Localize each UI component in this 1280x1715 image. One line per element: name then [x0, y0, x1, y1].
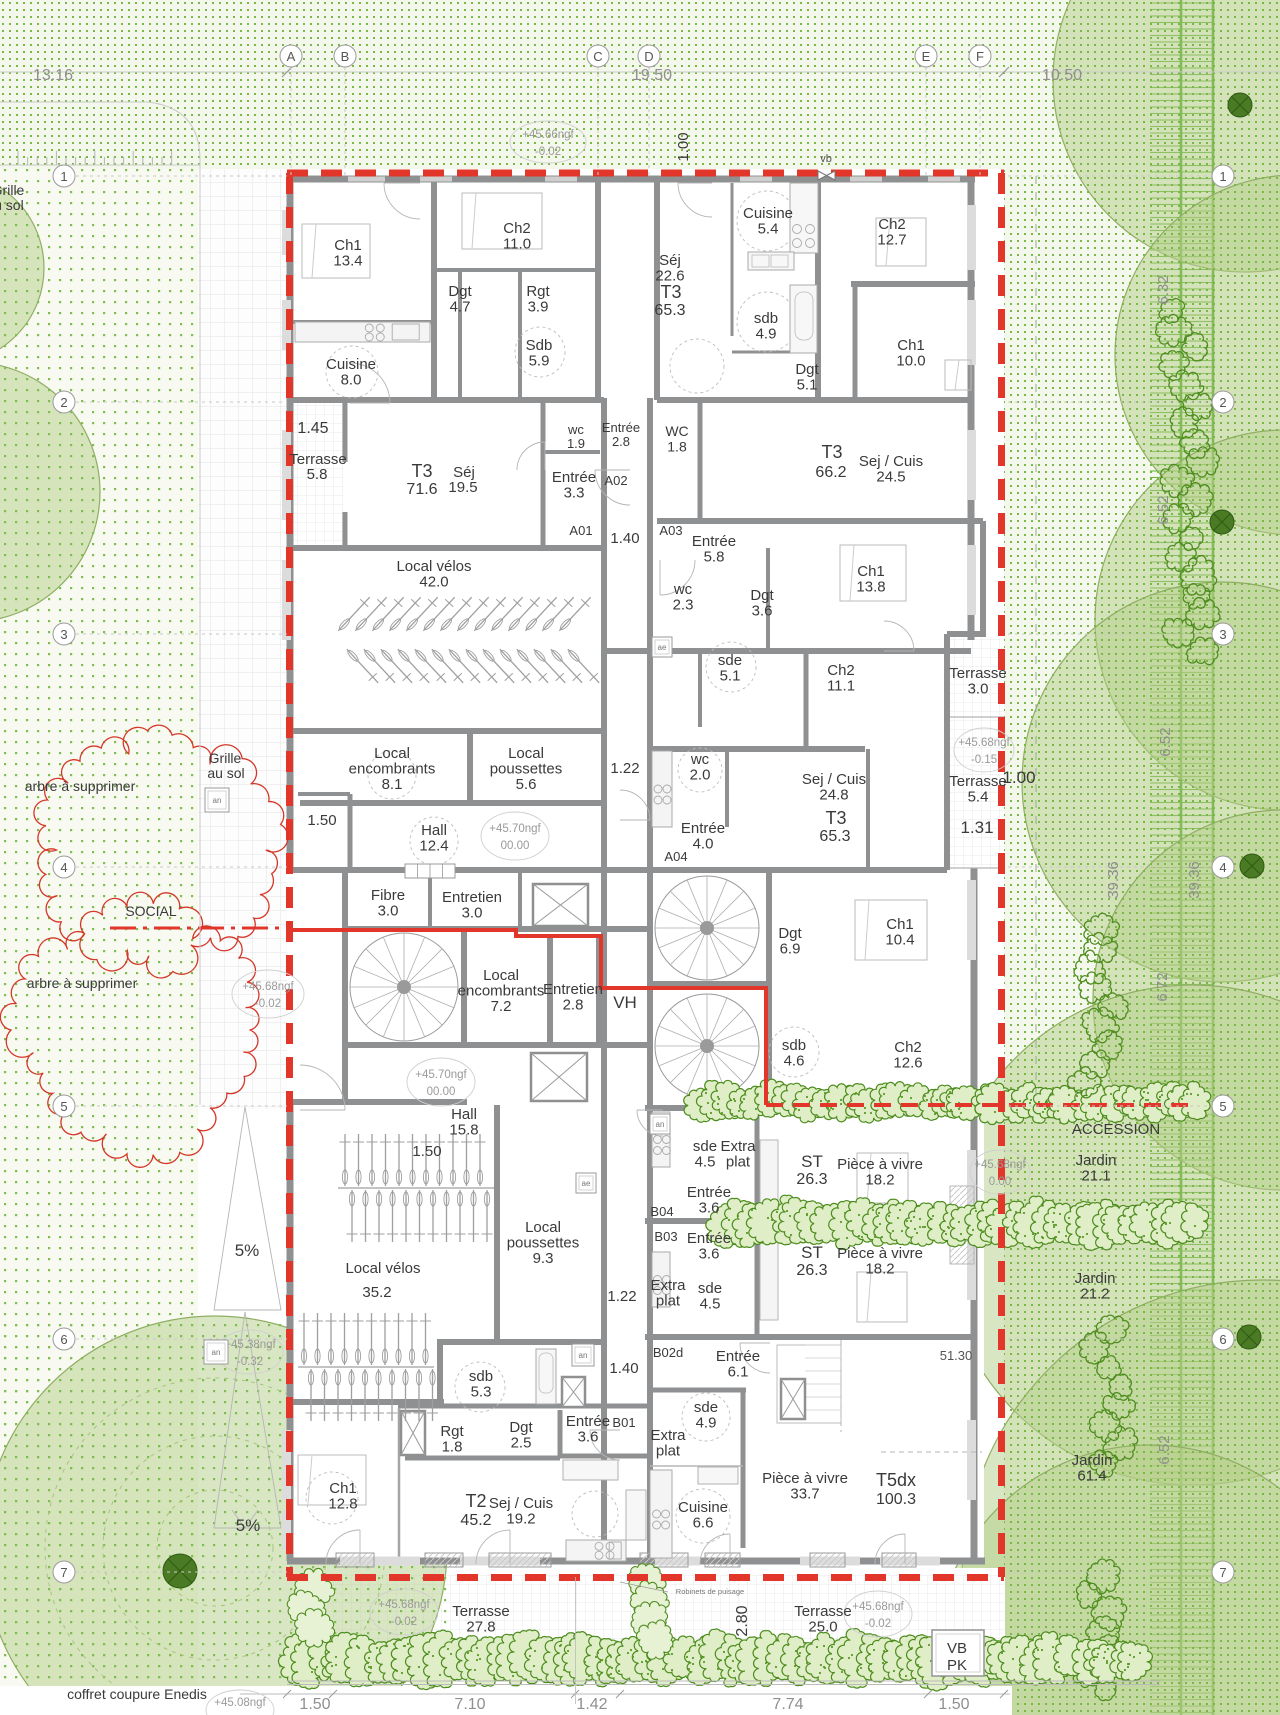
svg-text:12.4: 12.4 — [419, 838, 448, 855]
svg-text:Ch2: Ch2 — [878, 216, 906, 233]
svg-text:B04: B04 — [650, 1204, 673, 1219]
svg-text:5.8: 5.8 — [704, 549, 725, 566]
svg-text:Jardin: Jardin — [1076, 1152, 1117, 1169]
svg-text:25.0: 25.0 — [808, 1619, 837, 1636]
svg-text:6.52: 6.52 — [1155, 495, 1172, 524]
svg-text:4: 4 — [60, 860, 67, 875]
svg-text:2.8: 2.8 — [612, 434, 630, 449]
svg-text:Rgt: Rgt — [526, 283, 550, 300]
svg-text:7.74: 7.74 — [772, 1696, 803, 1713]
svg-text:T3: T3 — [825, 808, 846, 828]
svg-text:4.7: 4.7 — [450, 299, 471, 316]
svg-text:+45.66ngf: +45.66ngf — [522, 129, 574, 141]
svg-text:Ch1: Ch1 — [334, 237, 362, 254]
svg-text:-0.32: -0.32 — [237, 1356, 263, 1368]
svg-text:1.31: 1.31 — [960, 818, 993, 837]
svg-text:21.2: 21.2 — [1080, 1286, 1109, 1303]
svg-text:T2: T2 — [465, 1491, 486, 1511]
svg-text:1.22: 1.22 — [607, 1288, 636, 1305]
svg-text:Pièce à vivre: Pièce à vivre — [837, 1156, 923, 1173]
svg-text:an: an — [212, 1348, 221, 1357]
svg-text:4.9: 4.9 — [696, 1415, 717, 1432]
svg-text:1.00: 1.00 — [1002, 768, 1035, 787]
svg-text:Local: Local — [483, 967, 519, 984]
svg-text:+45.38ngf: +45.38ngf — [224, 1339, 276, 1351]
svg-text:F: F — [976, 49, 984, 64]
svg-text:an: an — [579, 1351, 588, 1360]
svg-text:3.0: 3.0 — [462, 905, 483, 922]
svg-text:3.0: 3.0 — [378, 903, 399, 920]
svg-text:+45.68ngf: +45.68ngf — [242, 981, 294, 993]
svg-text:24.8: 24.8 — [819, 787, 848, 804]
svg-text:51.30: 51.30 — [940, 1348, 973, 1363]
svg-text:19.50: 19.50 — [632, 67, 672, 84]
svg-text:Hall: Hall — [421, 822, 447, 839]
svg-text:Séj: Séj — [659, 252, 681, 269]
svg-text:11.0: 11.0 — [503, 236, 531, 253]
svg-text:wc: wc — [673, 581, 693, 598]
svg-text:T3: T3 — [660, 282, 681, 302]
svg-text:Ch1: Ch1 — [857, 563, 885, 580]
svg-text:5%: 5% — [236, 1516, 261, 1535]
svg-text:+45.70ngf: +45.70ngf — [489, 823, 541, 835]
svg-text:sde: sde — [698, 1280, 722, 1297]
svg-text:A01: A01 — [569, 523, 592, 538]
svg-text:1.42: 1.42 — [576, 1696, 607, 1713]
svg-text:Entrée: Entrée — [692, 533, 736, 550]
svg-text:E: E — [922, 49, 931, 64]
svg-text:Hall: Hall — [451, 1106, 477, 1123]
svg-text:Cuisine: Cuisine — [743, 205, 793, 222]
svg-text:Cuisine: Cuisine — [326, 356, 376, 373]
svg-text:Terrasse: Terrasse — [949, 773, 1007, 790]
svg-text:71.6: 71.6 — [406, 481, 437, 498]
svg-text:ST: ST — [801, 1152, 823, 1171]
svg-text:wc: wc — [567, 422, 584, 437]
svg-text:A03: A03 — [659, 523, 682, 538]
svg-text:5: 5 — [1219, 1099, 1226, 1114]
svg-text:Sej / Cuis: Sej / Cuis — [489, 1495, 553, 1512]
svg-text:5.6: 5.6 — [516, 776, 537, 793]
svg-text:66.2: 66.2 — [815, 464, 846, 481]
svg-text:Entrée: Entrée — [716, 1348, 760, 1365]
svg-text:ST: ST — [801, 1243, 823, 1262]
svg-text:+45.68ngf: +45.68ngf — [974, 1159, 1026, 1171]
svg-text:Entretien: Entretien — [543, 981, 603, 998]
svg-text:6.9: 6.9 — [780, 941, 801, 958]
svg-text:19.5: 19.5 — [448, 479, 477, 496]
svg-text:Entrée: Entrée — [687, 1230, 731, 1247]
svg-text:1.00: 1.00 — [675, 132, 692, 161]
svg-text:26.3: 26.3 — [796, 1262, 827, 1279]
svg-text:1.45: 1.45 — [297, 420, 328, 437]
svg-text:Ch2: Ch2 — [827, 662, 855, 679]
svg-text:Ch1: Ch1 — [329, 1480, 357, 1497]
svg-text:Sej / Cuis: Sej / Cuis — [802, 771, 866, 788]
svg-text:Ch1: Ch1 — [886, 916, 914, 933]
svg-text:B01: B01 — [612, 1415, 635, 1430]
svg-text:VB: VB — [947, 1640, 967, 1657]
svg-text:Dgt: Dgt — [509, 1419, 533, 1436]
svg-text:1.50: 1.50 — [938, 1696, 969, 1713]
svg-text:+45.68ngf: +45.68ngf — [958, 737, 1010, 749]
svg-text:3: 3 — [1219, 627, 1226, 642]
svg-text:5.4: 5.4 — [968, 789, 989, 806]
svg-text:au sol: au sol — [0, 197, 24, 213]
svg-text:Local vélos: Local vélos — [396, 558, 471, 575]
svg-text:00.00: 00.00 — [501, 840, 530, 852]
svg-text:Entretien: Entretien — [442, 889, 502, 906]
svg-text:19.2: 19.2 — [506, 1511, 535, 1528]
svg-text:Dgt: Dgt — [795, 361, 819, 378]
svg-text:arbre à supprimer: arbre à supprimer — [27, 975, 138, 991]
svg-text:plat: plat — [726, 1154, 751, 1171]
svg-text:5.3: 5.3 — [471, 1384, 492, 1401]
svg-text:sde: sde — [718, 652, 742, 669]
svg-text:21.1: 21.1 — [1081, 1168, 1110, 1185]
svg-text:Entrée: Entrée — [687, 1184, 731, 1201]
svg-text:+45.68ngf: +45.68ngf — [852, 1601, 904, 1613]
svg-text:an: an — [213, 796, 222, 805]
svg-text:B03: B03 — [654, 1229, 677, 1244]
svg-text:4.5: 4.5 — [700, 1296, 721, 1313]
svg-text:1.22: 1.22 — [610, 760, 639, 777]
svg-text:1.40: 1.40 — [610, 530, 639, 547]
svg-text:1: 1 — [60, 169, 67, 184]
svg-text:wc: wc — [690, 751, 710, 768]
svg-text:5.1: 5.1 — [797, 377, 818, 394]
svg-text:2.8: 2.8 — [563, 997, 584, 1014]
svg-text:plat: plat — [656, 1443, 681, 1460]
svg-text:65.3: 65.3 — [819, 828, 850, 845]
svg-text:4.6: 4.6 — [784, 1053, 805, 1070]
svg-text:ACCESSION: ACCESSION — [1072, 1121, 1160, 1138]
svg-text:5: 5 — [60, 1099, 67, 1114]
svg-text:Jardin: Jardin — [1075, 1270, 1116, 1287]
svg-text:5%: 5% — [235, 1241, 260, 1260]
svg-text:Grille: Grille — [0, 182, 25, 198]
svg-text:18.2: 18.2 — [865, 1172, 894, 1189]
svg-text:Entrée: Entrée — [602, 420, 640, 435]
svg-text:Rgt: Rgt — [440, 1423, 464, 1440]
svg-text:Sej / Cuis: Sej / Cuis — [859, 453, 923, 470]
svg-text:Grille: Grille — [209, 750, 242, 766]
svg-text:3.6: 3.6 — [752, 603, 773, 620]
svg-text:5.9: 5.9 — [529, 353, 550, 370]
svg-text:Entrée: Entrée — [566, 1413, 610, 1430]
svg-text:4.5: 4.5 — [695, 1154, 716, 1171]
svg-text:2: 2 — [60, 395, 67, 410]
svg-text:10.50: 10.50 — [1042, 67, 1082, 84]
svg-text:65.3: 65.3 — [654, 302, 685, 319]
svg-text:27.8: 27.8 — [466, 1619, 495, 1636]
svg-text:2.5: 2.5 — [511, 1435, 532, 1452]
svg-text:5.8: 5.8 — [307, 466, 328, 483]
svg-text:7: 7 — [1219, 1565, 1226, 1580]
svg-text:A: A — [287, 49, 296, 64]
svg-text:VH: VH — [613, 993, 637, 1012]
svg-text:1.8: 1.8 — [667, 439, 687, 455]
svg-text:1.50: 1.50 — [412, 1143, 441, 1160]
svg-text:Sdb: Sdb — [526, 337, 553, 354]
svg-text:24.5: 24.5 — [876, 469, 905, 486]
svg-text:7.2: 7.2 — [491, 998, 512, 1015]
svg-text:8.1: 8.1 — [382, 776, 403, 793]
svg-text:Extra: Extra — [650, 1427, 686, 1444]
svg-text:B: B — [341, 49, 350, 64]
svg-text:T3: T3 — [821, 442, 842, 462]
svg-text:1.40: 1.40 — [609, 1360, 638, 1377]
svg-text:6.52: 6.52 — [1157, 727, 1174, 756]
svg-text:T3: T3 — [411, 461, 432, 481]
svg-text:6.1: 6.1 — [728, 1364, 749, 1381]
svg-text:coffret coupure Enedis: coffret coupure Enedis — [67, 1686, 207, 1702]
svg-text:1.8: 1.8 — [442, 1439, 463, 1456]
svg-text:C: C — [593, 49, 602, 64]
svg-text:42.0: 42.0 — [419, 574, 448, 591]
svg-text:18.2: 18.2 — [865, 1261, 894, 1278]
svg-text:sde: sde — [694, 1399, 718, 1416]
svg-text:6: 6 — [1219, 1332, 1226, 1347]
svg-text:45.2: 45.2 — [460, 1512, 491, 1529]
svg-text:ae: ae — [658, 643, 667, 652]
svg-text:poussettes: poussettes — [490, 761, 563, 778]
svg-text:6: 6 — [60, 1332, 67, 1347]
svg-text:au sol: au sol — [207, 765, 244, 781]
svg-text:3: 3 — [60, 627, 67, 642]
svg-text:100.3: 100.3 — [876, 1491, 916, 1508]
svg-text:11.1: 11.1 — [827, 678, 855, 695]
svg-text:arbre à supprimer: arbre à supprimer — [25, 778, 136, 794]
svg-text:Terrasse: Terrasse — [794, 1603, 852, 1620]
svg-text:Local: Local — [525, 1219, 561, 1236]
svg-text:1.50: 1.50 — [307, 812, 336, 829]
svg-text:10.4: 10.4 — [885, 932, 914, 949]
svg-text:7.10: 7.10 — [454, 1696, 485, 1713]
svg-text:4.9: 4.9 — [756, 326, 777, 343]
svg-text:12.6: 12.6 — [893, 1055, 922, 1072]
svg-text:Pièce à vivre: Pièce à vivre — [762, 1470, 848, 1487]
svg-text:vb: vb — [820, 153, 832, 165]
svg-text:7: 7 — [60, 1565, 67, 1580]
svg-text:encombrants: encombrants — [349, 761, 436, 778]
svg-text:9.3: 9.3 — [533, 1250, 554, 1267]
svg-text:10.0: 10.0 — [896, 353, 925, 370]
svg-text:3.0: 3.0 — [968, 681, 989, 698]
svg-text:3.6: 3.6 — [699, 1200, 720, 1217]
svg-text:2.80: 2.80 — [734, 1605, 751, 1636]
svg-text:T5dx: T5dx — [876, 1470, 916, 1490]
svg-text:13.16: 13.16 — [33, 67, 73, 84]
svg-text:+45.70ngf: +45.70ngf — [415, 1069, 467, 1081]
svg-text:-0.02: -0.02 — [535, 146, 561, 158]
svg-text:SOCIAL: SOCIAL — [125, 903, 177, 919]
svg-text:3.6: 3.6 — [699, 1246, 720, 1263]
svg-text:PK: PK — [947, 1657, 967, 1674]
svg-text:-0.02: -0.02 — [255, 998, 281, 1010]
svg-text:A04: A04 — [664, 849, 687, 864]
svg-text:sdb: sdb — [469, 1368, 493, 1385]
svg-text:3.3: 3.3 — [564, 485, 585, 502]
svg-text:26.3: 26.3 — [796, 1171, 827, 1188]
svg-text:5.1: 5.1 — [720, 668, 741, 685]
svg-text:A02: A02 — [604, 473, 627, 488]
svg-text:33.7: 33.7 — [790, 1486, 819, 1503]
svg-text:plat: plat — [656, 1293, 681, 1310]
svg-text:12.7: 12.7 — [877, 232, 906, 249]
svg-text:1.50: 1.50 — [299, 1696, 330, 1713]
svg-text:39.36: 39.36 — [1186, 861, 1203, 899]
svg-text:61.4: 61.4 — [1077, 1468, 1106, 1485]
svg-text:13.8: 13.8 — [856, 579, 885, 596]
svg-text:Ch2: Ch2 — [894, 1039, 922, 1056]
svg-text:sdb: sdb — [782, 1037, 806, 1054]
svg-text:+45.68ngf: +45.68ngf — [378, 1599, 430, 1611]
svg-text:1.9: 1.9 — [567, 436, 585, 451]
svg-text:6.72: 6.72 — [1154, 972, 1171, 1001]
svg-text:Entrée: Entrée — [681, 820, 725, 837]
svg-text:encombrants: encombrants — [458, 983, 545, 1000]
svg-text:Local: Local — [508, 745, 544, 762]
svg-text:Pièce à vivre: Pièce à vivre — [837, 1245, 923, 1262]
svg-text:2: 2 — [1219, 395, 1226, 410]
svg-text:12.8: 12.8 — [328, 1496, 357, 1513]
svg-text:ae: ae — [582, 1179, 591, 1188]
svg-text:-0.02: -0.02 — [865, 1618, 891, 1630]
svg-text:Extra: Extra — [720, 1138, 756, 1155]
svg-text:Fibre: Fibre — [371, 887, 405, 904]
svg-text:Local vélos: Local vélos — [345, 1260, 420, 1277]
svg-text:1: 1 — [1219, 169, 1226, 184]
svg-text:6.52: 6.52 — [1156, 1435, 1173, 1464]
svg-text:poussettes: poussettes — [507, 1235, 580, 1252]
svg-text:0.00: 0.00 — [989, 1176, 1011, 1188]
svg-text:15.8: 15.8 — [449, 1122, 478, 1139]
svg-text:39.36: 39.36 — [1105, 861, 1122, 899]
svg-text:Extra: Extra — [650, 1277, 686, 1294]
svg-text:sdb: sdb — [754, 310, 778, 327]
svg-text:5.4: 5.4 — [758, 221, 779, 238]
svg-text:Terrasse: Terrasse — [452, 1603, 510, 1620]
svg-text:2.3: 2.3 — [673, 597, 694, 614]
svg-text:Ch2: Ch2 — [503, 220, 531, 237]
svg-text:8.0: 8.0 — [341, 372, 362, 389]
svg-text:Robinets de puisage: Robinets de puisage — [676, 1587, 744, 1596]
svg-text:an: an — [656, 1120, 665, 1129]
svg-text:00.00: 00.00 — [427, 1086, 456, 1098]
svg-text:4: 4 — [1219, 860, 1226, 875]
svg-text:sde: sde — [693, 1138, 717, 1155]
svg-text:35.2: 35.2 — [362, 1284, 391, 1301]
svg-text:3.6: 3.6 — [578, 1429, 599, 1446]
svg-text:WC: WC — [665, 423, 688, 439]
svg-text:Entrée: Entrée — [552, 469, 596, 486]
svg-text:-0.15: -0.15 — [971, 754, 997, 766]
svg-text:B02d: B02d — [653, 1345, 683, 1360]
svg-text:-0.02: -0.02 — [391, 1616, 417, 1628]
svg-text:6.32: 6.32 — [1155, 275, 1172, 304]
svg-text:3.9: 3.9 — [528, 299, 549, 316]
svg-text:Dgt: Dgt — [448, 283, 472, 300]
svg-text:Ch1: Ch1 — [897, 337, 925, 354]
svg-text:Dgt: Dgt — [778, 925, 802, 942]
svg-text:Cuisine: Cuisine — [678, 1499, 728, 1516]
svg-text:Jardin: Jardin — [1072, 1452, 1113, 1469]
svg-text:6.6: 6.6 — [693, 1515, 714, 1532]
svg-text:13.4: 13.4 — [333, 253, 362, 270]
svg-text:Dgt: Dgt — [750, 587, 774, 604]
svg-text:4.0: 4.0 — [693, 836, 714, 853]
svg-text:Terrasse: Terrasse — [949, 665, 1007, 682]
svg-text:Local: Local — [374, 745, 410, 762]
svg-text:2.0: 2.0 — [690, 767, 711, 784]
svg-text:D: D — [644, 49, 653, 64]
svg-text:+45.08ngf: +45.08ngf — [214, 1697, 266, 1709]
